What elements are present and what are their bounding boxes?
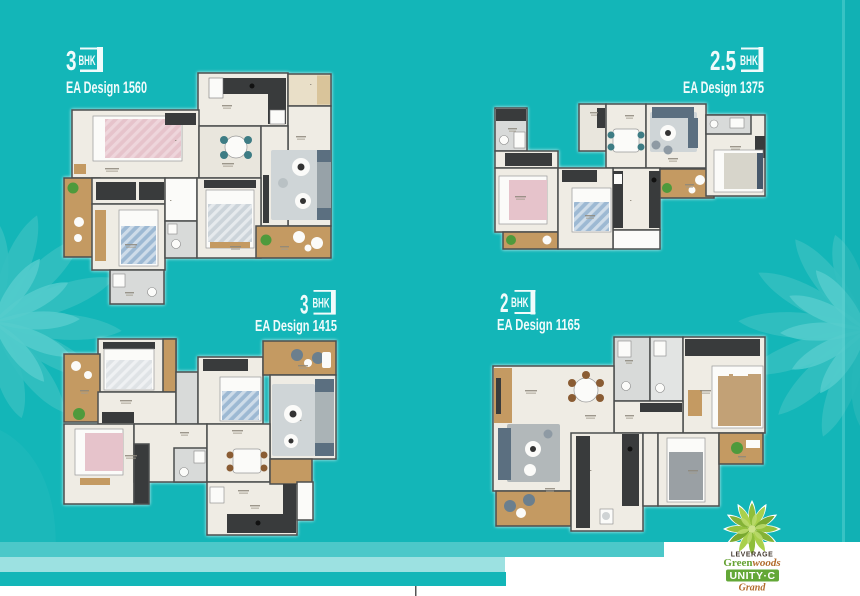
svg-text:2: 2 [500, 288, 509, 318]
svg-text:BHK: BHK [740, 52, 758, 68]
svg-text:BHK: BHK [511, 294, 529, 310]
svg-text:EA Design 1375: EA Design 1375 [683, 78, 764, 97]
svg-text:EA Design 1560: EA Design 1560 [66, 78, 147, 97]
svg-text:3: 3 [66, 45, 77, 76]
svg-text:BHK: BHK [313, 295, 330, 311]
svg-text:EA Design 1415: EA Design 1415 [255, 318, 337, 335]
svg-text:2.5: 2.5 [710, 45, 736, 76]
svg-text:BHK: BHK [79, 52, 96, 68]
svg-text:3: 3 [300, 290, 309, 320]
svg-text:Greenwoods: Greenwoods [723, 557, 780, 569]
svg-text:Grand: Grand [739, 583, 767, 594]
svg-text:EA Design 1165: EA Design 1165 [497, 317, 580, 334]
svg-text:UNITY·C: UNITY·C [729, 570, 775, 582]
